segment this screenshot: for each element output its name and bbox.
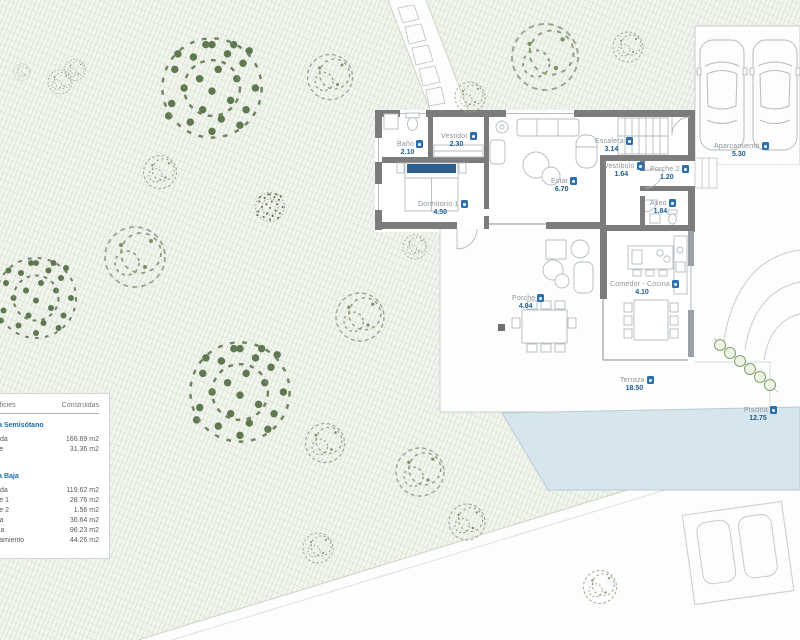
room-name: Vestíbulo [604,163,635,170]
legend-row: Porche 1 28.76 m2 [0,496,99,506]
room-label-row: Vestidor [441,132,477,140]
room-label-porche-2: Porche 2 1.20 [650,165,689,181]
surfaces-legend-table: Superficies Construidas Planta Semisótan… [0,393,110,559]
photo-marker-icon[interactable] [647,376,654,384]
room-label-row: Porche 2 [650,165,689,173]
terrace-floor [560,362,775,415]
room-label-dormitorio: Dormitorio 1 4.50 [418,200,468,216]
row-value: 36.64 m2 [70,516,99,526]
room-name: Terraza [620,377,645,384]
row-label: Porche [0,445,3,455]
outdoor-dining-table [522,310,567,343]
room-label-row: Aseo [650,199,676,207]
stool [646,270,654,276]
photo-marker-icon[interactable] [537,294,544,302]
tree [190,342,289,441]
row-value: 119.62 m2 [66,486,99,496]
room-name: Dormitorio 1 [418,201,459,208]
room-value: 2.30 [450,141,469,148]
room-name: Vestidor [441,133,468,140]
row-value: 166.69 m2 [66,435,99,445]
photo-marker-icon[interactable] [470,132,477,140]
chair [670,316,678,325]
tree [449,504,485,540]
legend-row: Vivienda 166.69 m2 [0,435,99,445]
wc-toilet [669,214,677,224]
photo-marker-icon[interactable] [762,142,769,150]
room-value: 4.10 [635,289,654,296]
photo-marker-icon[interactable] [682,165,689,173]
legend-row: Vivienda 119.62 m2 [0,486,99,496]
row-value: 28.76 m2 [70,496,99,506]
room-label-row: Vestíbulo [604,162,644,170]
row-value: 1.56 m2 [74,506,99,516]
legend-col-construidas: Construidas [62,402,99,409]
car [697,40,747,150]
legend-row: Piscina 36.64 m2 [0,516,99,526]
room-label-escalera: Escalera 3.14 [595,137,633,153]
row-value: 96.23 m2 [70,526,99,536]
legend-header: Superficies Construidas [0,402,99,414]
legend-section-title: Planta Semisótano [0,422,99,429]
room-label-row: Escalera [595,137,633,145]
room-name: Escalera [595,138,624,145]
room-value: 1.84 [654,208,673,215]
room-name: Porche [512,295,535,302]
legend-row: Aparcamiento 44.26 m2 [0,536,99,546]
room-value: 1.64 [614,171,633,178]
sofa [517,119,579,136]
photo-marker-icon[interactable] [461,200,468,208]
room-label-row: Porche [512,294,544,302]
room-name: Aseo [650,200,667,207]
tree [162,38,261,137]
room-label-aparcamiento: Aparcamiento 5.30 [714,142,769,158]
stool [633,270,641,276]
room-label-porche: Porche 4.04 [512,294,544,310]
porch-round-table [555,274,569,288]
tree [256,193,285,222]
row-value: 31.36 m2 [70,445,99,455]
photo-marker-icon[interactable] [770,406,777,414]
room-label-row: Dormitorio 1 [418,200,468,208]
photo-marker-icon[interactable] [626,137,633,145]
tree [308,55,353,100]
side-porch-steps [695,158,717,188]
oven [676,262,685,272]
nightstand [397,163,404,173]
plan-drawing [0,0,800,640]
room-value: 4.50 [433,209,452,216]
kitchen-sink [632,250,642,264]
room-value: 12.75 [749,415,772,422]
tree [306,424,345,463]
tree [403,235,427,259]
photo-marker-icon[interactable] [672,280,679,288]
wc-sink [650,214,660,223]
shower [384,114,398,129]
porch-chair [571,240,589,258]
tree [48,70,72,94]
room-name: Porche 2 [650,166,680,173]
legend-col-superficies: Superficies [0,402,16,409]
toilet [408,118,418,131]
tree [144,156,177,189]
chair [527,344,537,352]
room-label-row: Piscina [744,406,777,414]
row-label: Vivienda [0,435,8,445]
chair [568,318,576,328]
tree [303,533,333,563]
tree [396,448,444,496]
room-value: 4.04 [519,303,538,310]
row-label: Terraza [0,526,4,536]
car [750,40,800,150]
chair [555,301,565,309]
chair [670,303,678,312]
chair [555,344,565,352]
room-label-piscina: Piscina 12.75 [744,406,777,422]
room-label-bano: Baño 2.10 [397,140,423,156]
legend-row: Porche 2 1.56 m2 [0,506,99,516]
photo-marker-icon[interactable] [669,199,676,207]
tree [336,293,384,341]
row-label: Porche 2 [0,506,9,516]
legend-row: Porche 31.36 m2 [0,445,99,455]
room-name: Comedor - Cocina [610,281,670,288]
room-name: Aparcamiento [714,143,760,150]
photo-marker-icon[interactable] [637,162,644,170]
room-label-terraza: Terraza 18.50 [620,376,654,392]
sun-deck [682,501,794,604]
room-label-row: Aparcamiento [714,142,769,150]
room-label-vestidor: Vestidor 2.30 [441,132,477,148]
chair [624,329,632,338]
room-value: 6.70 [555,186,574,193]
room-value: 2.10 [401,149,420,156]
chair [541,344,551,352]
row-label: Vivienda [0,486,8,496]
row-value: 44.26 m2 [70,536,99,546]
room-label-aseo: Aseo 1.84 [650,199,676,215]
tree [613,32,643,62]
chair [624,316,632,325]
room-name: Estar [551,178,568,185]
tree [512,24,578,90]
chaise-lounge [576,135,597,168]
stool [659,270,667,276]
room-name: Piscina [744,407,768,414]
tree [105,227,165,287]
room-label-row: Estar [551,177,577,185]
porch-table [546,240,566,259]
tree [0,258,76,338]
armchair [490,140,505,164]
row-label: Porche 1 [0,496,9,506]
room-value: 3.14 [605,146,624,153]
room-label-row: Terraza [620,376,654,384]
chair [670,329,678,338]
row-label: Aparcamiento [0,536,24,546]
site-plan: Baño 2.10 Vestidor 2.30 Dormitorio 1 4.5… [0,0,800,640]
room-value: 5.30 [732,151,751,158]
tree [65,60,86,81]
photo-marker-icon[interactable] [416,140,423,148]
room-label-row: Comedor - Cocina [610,280,679,288]
bed-headboard [407,164,456,173]
chair [624,303,632,312]
room-value: 18.50 [626,385,649,392]
room-label-comedor-cocina: Comedor - Cocina 4.10 [610,280,679,296]
legend-section-title: Planta Baja [0,473,99,480]
row-label: Piscina [0,516,4,526]
porch-lounger [574,262,593,293]
nightstand [459,163,466,173]
chair [512,318,520,328]
dining-table [634,300,668,340]
porch-column [498,324,505,331]
room-name: Baño [397,141,414,148]
room-label-estar: Estar 6.70 [551,177,577,193]
tree [14,64,31,81]
room-value: 1.20 [660,174,679,181]
legend-row: Terraza 96.23 m2 [0,526,99,536]
room-label-row: Baño [397,140,423,148]
photo-marker-icon[interactable] [570,177,577,185]
room-label-vestibulo: Vestíbulo 1.64 [604,162,644,178]
